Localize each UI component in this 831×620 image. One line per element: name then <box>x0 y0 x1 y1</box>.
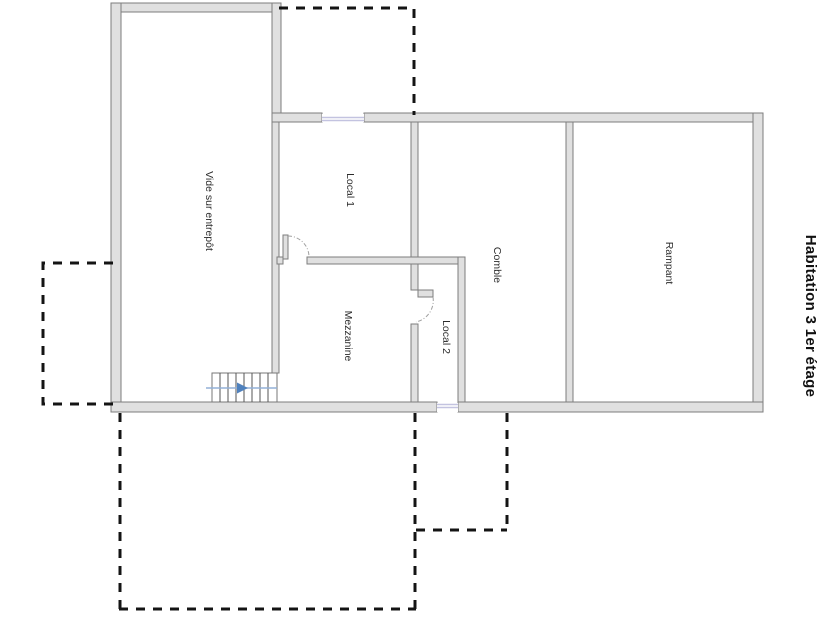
wall-outer-right <box>753 113 763 412</box>
local1-door-leaf <box>283 235 288 259</box>
wall-comble-rampant-divider <box>566 122 573 402</box>
floor-plan-drawing: Vide sur entrepôt Local 1 Mezzanine Loca… <box>0 0 831 620</box>
wall-mezzanine-top <box>307 257 465 264</box>
staircase <box>206 373 277 402</box>
wall-local2-door-stub <box>418 290 433 297</box>
left-dashed-outline <box>43 263 113 404</box>
floor-plan-canvas: Vide sur entrepôt Local 1 Mezzanine Loca… <box>0 0 831 620</box>
wall-main-top-right-of-window <box>364 113 763 122</box>
wall-vide-right-upper <box>272 3 281 122</box>
wall-vide-top <box>111 3 281 12</box>
plan-title: Habitation 3 1er étage <box>802 235 819 397</box>
wall-bottom-left-of-window <box>111 402 437 412</box>
local1-door-swing-arc <box>288 236 309 257</box>
wall-local2-left-lower <box>411 324 418 402</box>
room-label-mezzanine: Mezzanine <box>342 311 354 362</box>
top-dashed-outline <box>279 8 414 115</box>
wall-bottom-right-of-window <box>458 402 763 412</box>
room-label-rampant: Rampant <box>663 242 675 285</box>
wall-local1-comble-divider <box>411 122 418 290</box>
room-label-comble: Comble <box>491 247 503 283</box>
room-label-local-1: Local 1 <box>344 173 356 207</box>
room-label-vide-sur-entrepot: Vide sur entrepôt <box>203 171 215 251</box>
bottom-dashed-outline <box>119 413 507 609</box>
wall-local1-door-stub <box>277 257 283 264</box>
wall-local2-right <box>458 257 465 402</box>
local2-door-swing-arc <box>416 297 433 322</box>
wall-vide-mezzanine-divider <box>272 122 279 373</box>
room-label-local-2: Local 2 <box>440 320 452 354</box>
wall-main-top-left-of-window <box>272 113 322 122</box>
wall-outer-left <box>111 3 121 412</box>
